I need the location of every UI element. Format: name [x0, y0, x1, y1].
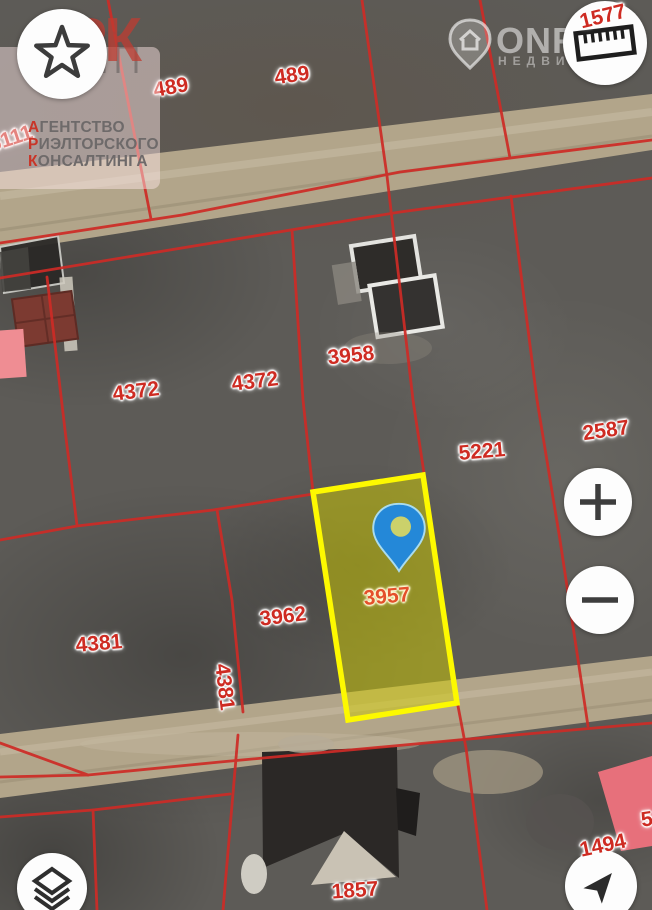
plus-icon: [576, 480, 620, 524]
layers-icon: [29, 865, 75, 910]
navigation-arrow-icon: [578, 863, 624, 909]
favorites-button[interactable]: [17, 9, 107, 99]
zoom-out-button[interactable]: [566, 566, 634, 634]
star-icon: [31, 23, 93, 85]
zoom-in-button[interactable]: [564, 468, 632, 536]
minus-icon: [578, 578, 622, 622]
ruler-icon: [570, 17, 640, 69]
map-view: 4894896111395843724372258752213957396243…: [0, 0, 652, 910]
map-canvas[interactable]: [0, 0, 652, 910]
measure-button[interactable]: [563, 1, 647, 85]
